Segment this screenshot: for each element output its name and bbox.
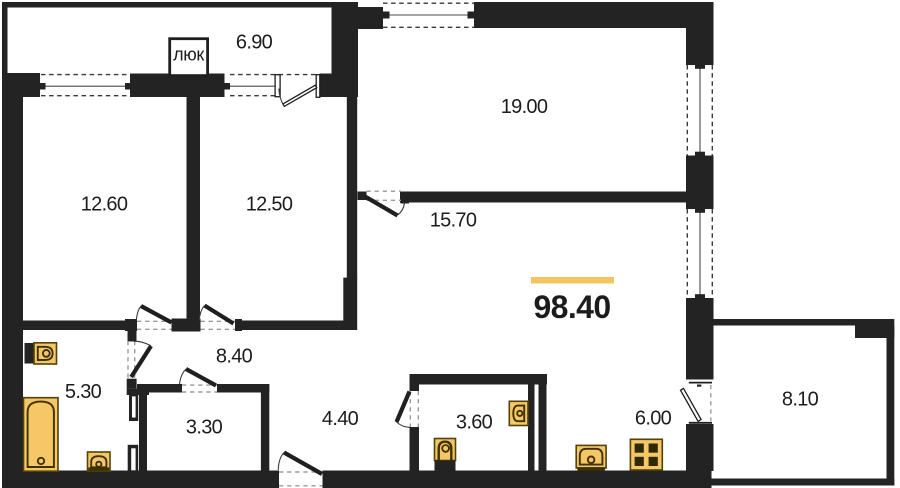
svg-text:3.30: 3.30: [186, 417, 223, 439]
svg-text:19.00: 19.00: [501, 96, 548, 118]
svg-text:3.60: 3.60: [456, 412, 493, 434]
svg-text:люк: люк: [173, 45, 204, 65]
svg-text:12.60: 12.60: [81, 194, 128, 216]
svg-text:5.30: 5.30: [65, 381, 102, 403]
svg-text:12.50: 12.50: [246, 193, 293, 215]
svg-text:6.90: 6.90: [236, 31, 273, 53]
svg-text:6.00: 6.00: [635, 407, 672, 429]
svg-text:15.70: 15.70: [430, 209, 477, 231]
svg-text:98.40: 98.40: [533, 289, 610, 325]
svg-text:8.10: 8.10: [782, 389, 819, 411]
svg-text:8.40: 8.40: [216, 346, 253, 368]
svg-text:4.40: 4.40: [322, 408, 359, 430]
